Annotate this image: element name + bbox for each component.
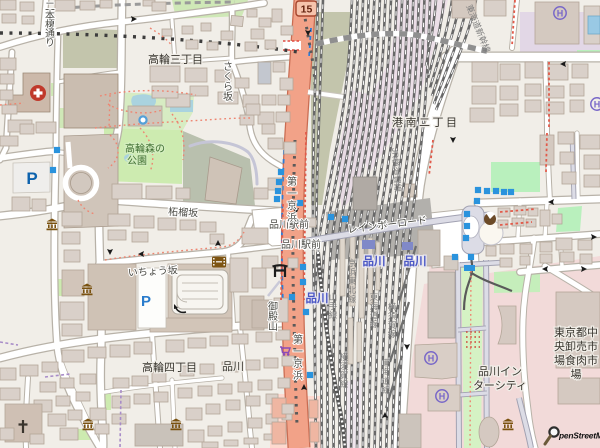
svg-text:場食肉市: 場食肉市 — [554, 353, 598, 367]
svg-text:東海道線: 東海道線 — [382, 358, 391, 395]
svg-text:横須賀線: 横須賀線 — [388, 302, 397, 339]
svg-text:高輪四丁目: 高輪四丁目 — [142, 360, 197, 374]
svg-text:央卸売市: 央卸売市 — [554, 339, 598, 353]
svg-text:二本榎通り: 二本榎通り — [45, 2, 55, 49]
svg-text:第一京浜: 第一京浜 — [293, 333, 303, 382]
svg-text:品川: 品川 — [404, 254, 427, 268]
svg-text:山手線: 山手線 — [329, 292, 338, 320]
svg-text:東京都中: 東京都中 — [554, 325, 598, 339]
svg-text:高輪森の: 高輪森の — [125, 142, 165, 155]
svg-text:品川: 品川 — [363, 254, 386, 268]
svg-text:京浜東北線: 京浜東北線 — [348, 258, 357, 304]
svg-text:品川駅前: 品川駅前 — [281, 238, 321, 251]
svg-text:横須賀線: 横須賀線 — [340, 352, 349, 389]
svg-text:15: 15 — [301, 4, 313, 16]
svg-text:品川: 品川 — [222, 360, 244, 373]
svg-text:ターシティ: ターシティ — [473, 379, 527, 392]
svg-text:品川イン: 品川イン — [478, 365, 522, 378]
svg-text:公園: 公園 — [127, 155, 147, 167]
svg-text:品川: 品川 — [306, 291, 329, 305]
svg-text:東海道線: 東海道線 — [370, 292, 379, 329]
svg-text:P: P — [26, 169, 37, 188]
svg-text:さくら坂: さくら坂 — [223, 61, 233, 103]
svg-text:高輪三丁目: 高輪三丁目 — [148, 52, 203, 66]
svg-text:penStreetMap: penStreetMap — [558, 431, 600, 441]
svg-text:第一京浜: 第一京浜 — [287, 175, 297, 224]
svg-text:P: P — [141, 293, 151, 310]
svg-text:港南二丁目: 港南二丁目 — [392, 116, 460, 129]
svg-text:御殿山: 御殿山 — [268, 300, 278, 333]
svg-text:場: 場 — [571, 368, 582, 381]
